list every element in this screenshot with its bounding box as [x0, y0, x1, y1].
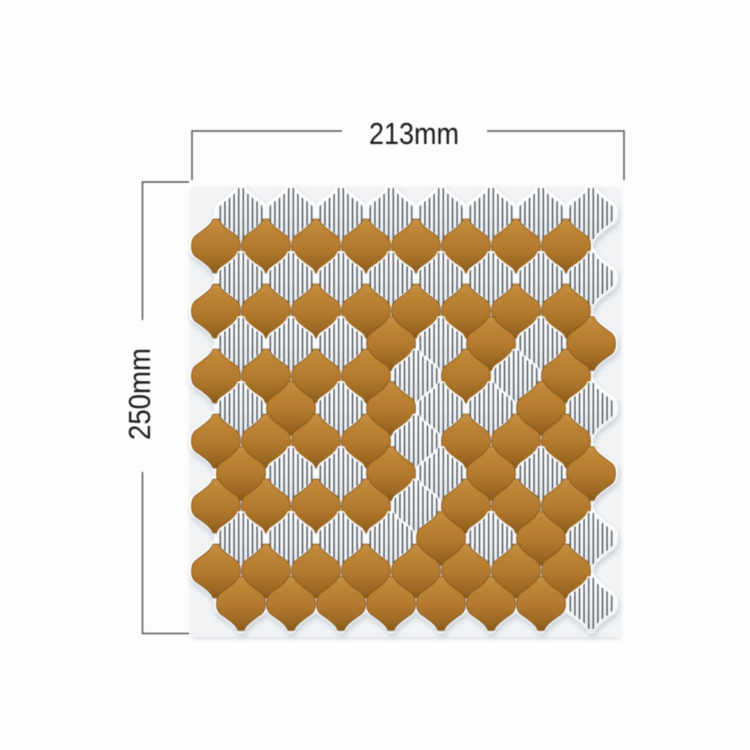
svg-text:213mm: 213mm [369, 116, 459, 151]
svg-text:250mm: 250mm [122, 348, 157, 440]
